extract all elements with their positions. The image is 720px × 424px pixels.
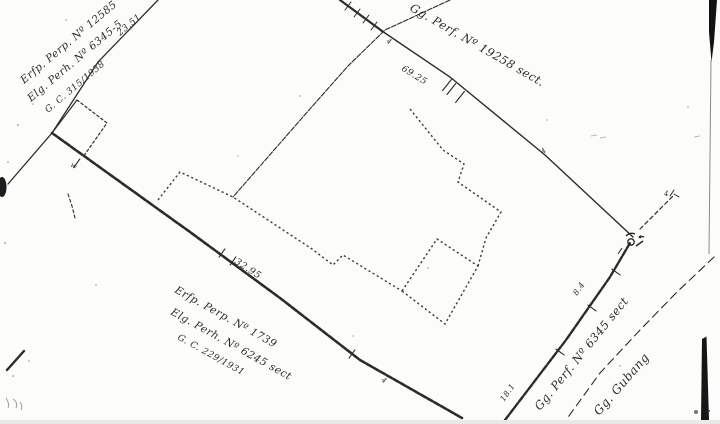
ink-blob: [694, 410, 698, 414]
short-dashed-offshoot: [68, 194, 75, 218]
east-mid-measurement: 8.4: [571, 280, 587, 297]
inner-division-line: [233, 0, 450, 197]
scan-speckles: [4, 19, 689, 377]
square-plot-dotted-sides: [77, 100, 107, 157]
right-edge-ink-blot-top: [709, 0, 717, 62]
tie-end-mark: [670, 190, 679, 197]
point-mark-crossing: 4: [384, 36, 393, 46]
left-edge-ink-blot: [0, 177, 7, 197]
faint-pencil-dashes: [591, 135, 700, 138]
point-mark-junction: 4: [663, 190, 668, 198]
bottom-left-ink-slash: [7, 351, 24, 370]
top-right-parcel-label: Gg. Perf. Nº 19258 sect.: [408, 0, 548, 89]
east-lower-measurement: 18.1: [498, 382, 517, 403]
survey-map-canvas: Erfp. Perp. Nº 12585 Elg. Perh. Nº 6345-…: [0, 0, 720, 420]
bottom-left-scribble: [6, 398, 22, 410]
scan-artifacts: [0, 0, 717, 420]
north-boundary-stub: [340, 0, 382, 31]
north-measurement: 69.25: [399, 64, 428, 87]
north-boundary-station-marks: [443, 80, 465, 103]
building-annex-outline: [402, 239, 478, 324]
handwritten-annotations: Erfp. Perp. Nº 12585 Elg. Perh. Nº 6345-…: [17, 0, 711, 420]
quote-mark: ”: [705, 408, 711, 420]
parcel-boundaries: [8, 0, 714, 420]
building-footprint: [158, 109, 501, 324]
scanned-survey-map: Erfp. Perp. Nº 12585 Elg. Perh. Nº 6345-…: [0, 0, 720, 420]
building-east-block-outline: [410, 109, 501, 266]
junction-dashed-tie: [640, 196, 673, 229]
point-mark-south: 4: [379, 375, 388, 385]
point-mark-west: w: [69, 161, 78, 171]
south-measurement: 32.95: [232, 256, 263, 281]
point-mark-north: 4: [539, 147, 548, 157]
right-edge-fold-line: [709, 60, 711, 254]
survey-monument-icon: [618, 233, 644, 254]
building-west-wing-outline: [158, 172, 402, 291]
road-name-label: Gg. Gubang: [591, 350, 652, 418]
